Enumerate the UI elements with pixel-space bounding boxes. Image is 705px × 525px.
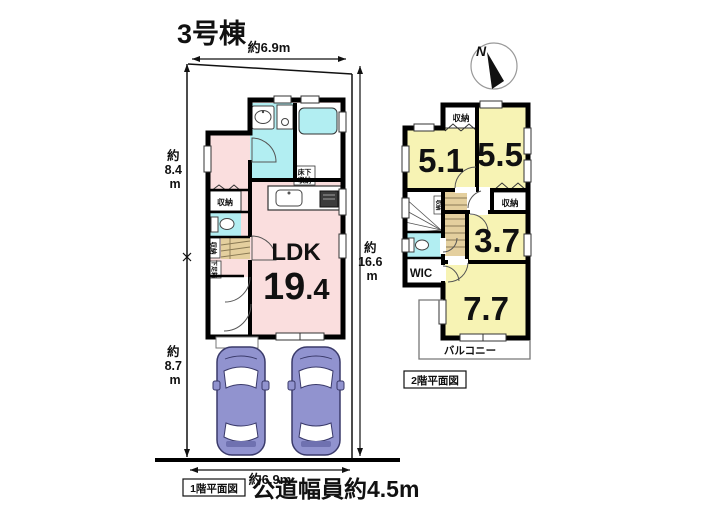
- floor-plan-drawing: 3号棟 約6.9m 約 8.4 m 約 8.7 m 約 16: [0, 0, 705, 525]
- room-label-3-7: 3.7: [474, 222, 520, 259]
- first-floor-plan: 収納 収納 下足箱: [204, 96, 346, 348]
- entrance-hall: [210, 277, 248, 335]
- floor-plan-page: 3号棟 約6.9m 約 8.4 m 約 8.7 m 約 16: [0, 0, 705, 525]
- dim-right-depth: 約 16.6 m: [358, 240, 386, 283]
- compass-needle: [487, 52, 504, 89]
- dim-top-width: 約6.9m: [248, 40, 291, 55]
- dim-left-lower: 約 8.7 m: [165, 344, 186, 387]
- hall-storage-label: 収納: [217, 197, 233, 207]
- stairs-2f: [445, 192, 467, 256]
- compass: N: [471, 43, 517, 89]
- compass-north-label: N: [476, 43, 487, 59]
- washbasin: [252, 106, 274, 129]
- kitchen-counter: [268, 186, 341, 210]
- road-width-label: 公道幅員約4.5m: [252, 476, 419, 502]
- storage-top-label: 収納: [452, 113, 469, 123]
- page-title: 3号棟: [177, 19, 247, 49]
- balcony-label: バルコニー: [444, 345, 496, 357]
- floor1-caption: 1階平面図: [190, 482, 238, 495]
- underfloor-storage: 床下 収納: [294, 166, 315, 185]
- floor2-caption: 2階平面図: [411, 374, 459, 387]
- under-stairs-storage-label: 収納: [210, 242, 219, 256]
- storage-right-label: 収納: [501, 198, 518, 208]
- room-label-5-1: 5.1: [418, 142, 464, 179]
- car-2: [288, 347, 344, 455]
- room-label-ldk: LDK: [271, 239, 321, 266]
- room-label-5-5: 5.5: [477, 136, 523, 173]
- room-label-7-7: 7.7: [463, 290, 509, 327]
- dim-left-upper: 約 8.4 m: [165, 148, 186, 191]
- car-1: [213, 347, 269, 455]
- wic-label: WIC: [410, 268, 432, 280]
- svg-text:床下: 床下: [298, 168, 312, 177]
- bathtub: [299, 108, 337, 134]
- second-floor-plan: 収納 収納 収納: [402, 101, 531, 359]
- washing-machine: [277, 105, 293, 129]
